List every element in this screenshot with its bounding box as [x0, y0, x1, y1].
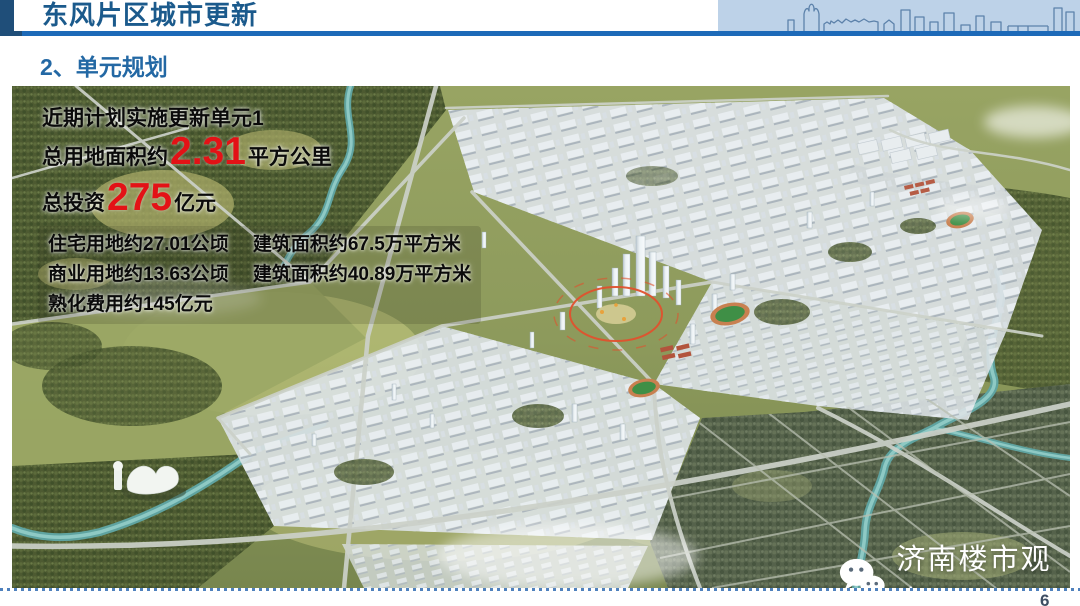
detail-line-commercial: 商业用地约13.63公顷 建筑面积约40.89万平方米 [48, 260, 471, 290]
area-suffix: 平方公里 [248, 141, 332, 171]
overlay-line-unit: 近期计划实施更新单元1 [42, 102, 264, 132]
overlay-stats-detail: 住宅用地约27.01公顷 建筑面积约67.5万平方米 商业用地约13.63公顷 … [38, 226, 481, 324]
detail-line-residential: 住宅用地约27.01公顷 建筑面积约67.5万平方米 [48, 230, 471, 260]
footer-dotted-line [0, 588, 1080, 591]
detail-line-cost: 熟化费用约145亿元 [48, 290, 471, 320]
skyline-graphic [718, 0, 1080, 31]
overlay-line-area: 总用地面积约2.31平方公里 [42, 132, 332, 171]
watermark-text: 济南楼市观察 [897, 536, 1071, 588]
header-divider [0, 31, 1080, 36]
invest-value: 275 [107, 178, 172, 217]
overlay-line-investment: 总投资275亿元 [42, 178, 216, 217]
page-number: 6 [1040, 591, 1049, 606]
area-value: 2.31 [170, 132, 246, 171]
header-accent-block [0, 0, 14, 31]
aerial-render: 近期计划实施更新单元1 总用地面积约2.31平方公里 总投资275亿元 住宅用地… [12, 86, 1070, 588]
invest-prefix: 总投资 [42, 187, 105, 217]
watermark: 济南楼市观察 [838, 536, 1070, 588]
presentation-slide: 东风片区城市更新 2、单元规划 [0, 0, 1080, 606]
section-title: 2、单元规划 [40, 48, 168, 82]
slide-header: 东风片区城市更新 [0, 0, 1080, 36]
invest-suffix: 亿元 [174, 187, 216, 217]
page-title: 东风片区城市更新 [42, 0, 258, 31]
wechat-icon [838, 556, 887, 588]
city-skyline-icon [718, 0, 1080, 31]
area-prefix: 总用地面积约 [42, 141, 168, 171]
